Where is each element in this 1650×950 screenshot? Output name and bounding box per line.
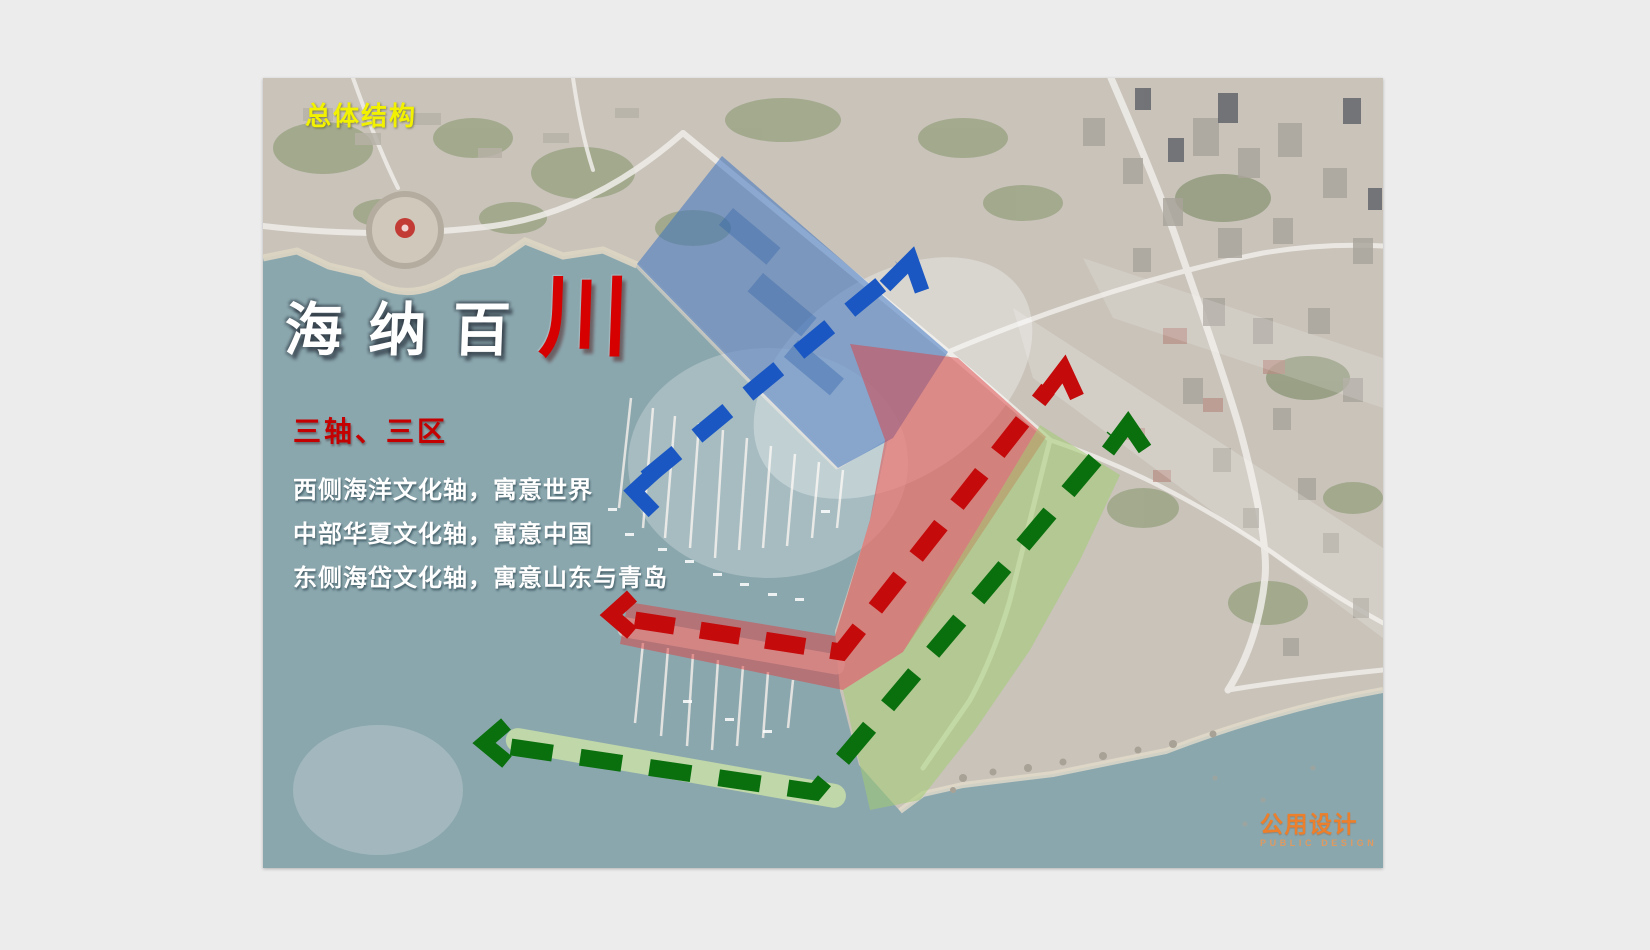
logo-english-name: PUBLIC DESIGN (1260, 839, 1377, 848)
axes-legend: 三轴、三区 西侧海洋文化轴，寓意世界 中部华夏文化轴，寓意中国 东侧海岱文化轴，… (293, 410, 668, 600)
main-title-red-part: 川 (538, 276, 631, 359)
main-title-white-part: 海纳百 (284, 301, 538, 359)
legend-heading: 三轴、三区 (293, 410, 668, 450)
legend-line-central: 中部华夏文化轴，寓意中国 (293, 512, 668, 556)
corner-label: 总体结构 (305, 96, 417, 133)
planning-slide: 总体结构 海纳百 川 三轴、三区 西侧海洋文化轴，寓意世界 中部华夏文化轴，寓意… (263, 78, 1383, 868)
page-background: { "slide": { "corner_label": "总体结构", "ti… (0, 0, 1650, 950)
seaside-plaza (369, 194, 441, 266)
legend-line-west: 西侧海洋文化轴，寓意世界 (293, 468, 668, 512)
legend-line-east: 东侧海岱文化轴，寓意山东与青岛 (293, 556, 668, 600)
logo-chinese-name: 公用设计 (1260, 813, 1377, 836)
main-title: 海纳百 川 (284, 276, 631, 359)
company-logo: 公用设计 PUBLIC DESIGN (1260, 813, 1377, 848)
